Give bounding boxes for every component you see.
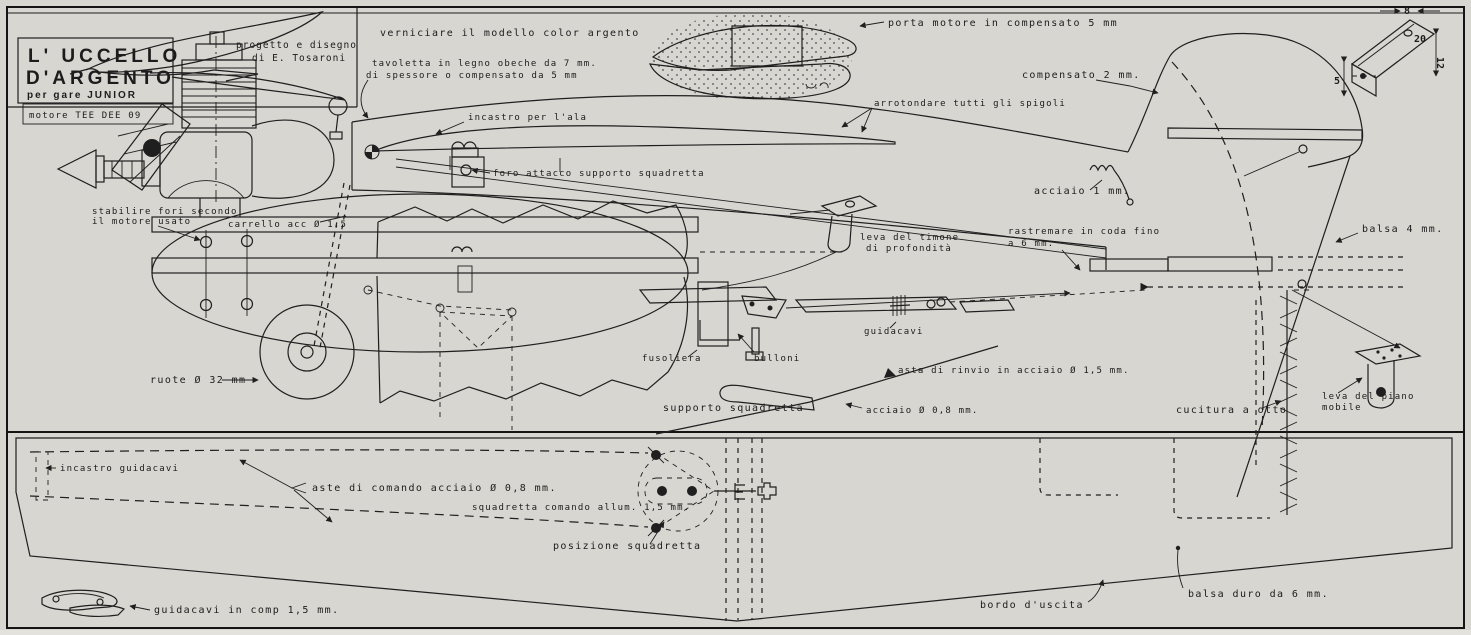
label-arrotondare: arrotondare tutti gli spigoli: [874, 99, 1066, 109]
label-rastremare-2: a 6 mm.: [1008, 239, 1054, 249]
label-guidacavi-comp: guidacavi in comp 1,5 mm.: [154, 605, 340, 616]
label-bordo-uscita: bordo d'uscita: [980, 600, 1084, 611]
label-leva-timone-2: di profondità: [866, 244, 952, 254]
dim-20: 20: [1414, 34, 1426, 45]
fuselage-top-view: [364, 201, 687, 430]
corner-block-detail: 8 20 12 5: [1334, 6, 1445, 96]
label-incastro-ala: incastro per l'ala: [468, 113, 587, 123]
label-tavoletta-1: tavoletta in legno obeche da 7 mm.: [372, 59, 597, 69]
label-tavoletta-2: di spessore o compensato da 5 mm: [366, 71, 578, 81]
label-leva-piano-2: mobile: [1322, 403, 1362, 413]
plan-subtitle: per gare JUNIOR: [27, 90, 137, 101]
model-plan-sheet: L' UCCELLO D'ARGENTO per gare JUNIOR pro…: [0, 0, 1471, 635]
label-guidacavi: guidacavi: [864, 327, 924, 337]
label-compensato2: compensato 2 mm.: [1022, 70, 1141, 81]
label-ruote: ruote Ø 32 mm: [150, 374, 246, 386]
elevator-horn: [702, 196, 876, 290]
annotations: verniciare il modello color argento tavo…: [60, 18, 1444, 616]
label-foro-attacco: foro attacco supporto squadretta: [493, 169, 705, 179]
dim-5: 5: [1334, 76, 1340, 87]
label-fusoliera: fusoliera: [642, 354, 702, 364]
plan-title-line2: D'ARGENTO: [26, 68, 175, 89]
motor-label: motore TEE DEE 09: [29, 111, 142, 121]
plan-drawing: L' UCCELLO D'ARGENTO per gare JUNIOR pro…: [0, 0, 1471, 635]
plan-title-line1: L' UCCELLO: [28, 46, 181, 67]
label-posizione-squadretta: posizione squadretta: [553, 541, 701, 552]
label-bulloni: bulloni: [754, 354, 800, 364]
label-leva-timone-1: leva del timone: [860, 233, 959, 243]
label-squadretta-comando: squadretta comando allum. 1,5 mm.: [472, 503, 690, 513]
label-stabilire-1: stabilire fori secondo: [92, 207, 238, 217]
nose-top-view: [152, 183, 842, 399]
label-porta-motore: porta motore in compensato 5 mm: [888, 18, 1118, 29]
label-balsa-duro: balsa duro da 6 mm.: [1188, 589, 1329, 600]
fin-rudder: [1128, 34, 1404, 515]
label-carrello: carrello acc Ø 1,5: [228, 219, 347, 230]
label-rastremare-1: rastremare in coda fino: [1008, 227, 1160, 237]
label-verniciare: verniciare il modello color argento: [380, 28, 640, 39]
label-aste-comando: aste di comando acciaio Ø 0,8 mm.: [312, 482, 557, 494]
label-cucitura: cucitura a otto: [1176, 405, 1287, 416]
label-asta-rinvio: asta di rinvio in acciaio Ø 1,5 mm.: [898, 365, 1130, 376]
sheet-border: [0, 7, 1471, 635]
motor-mount-top-view: [650, 13, 856, 101]
dim-8: 8: [1404, 6, 1410, 17]
label-supporto-squadretta: supporto squadretta: [663, 403, 804, 414]
label-balsa4: balsa 4 mm.: [1362, 224, 1444, 235]
label-incastro-guidacavi: incastro guidacavi: [60, 464, 179, 474]
label-stabilire-2: il motore usato: [92, 217, 191, 227]
label-leva-piano-1: leva del piano: [1322, 392, 1415, 402]
label-acciaio08: acciaio Ø 0,8 mm.: [866, 405, 979, 416]
credit-line2: di E. Tosaroni: [252, 53, 346, 64]
label-acciaio1: acciaio 1 mm.: [1034, 186, 1130, 197]
dim-12: 12: [1434, 57, 1445, 69]
